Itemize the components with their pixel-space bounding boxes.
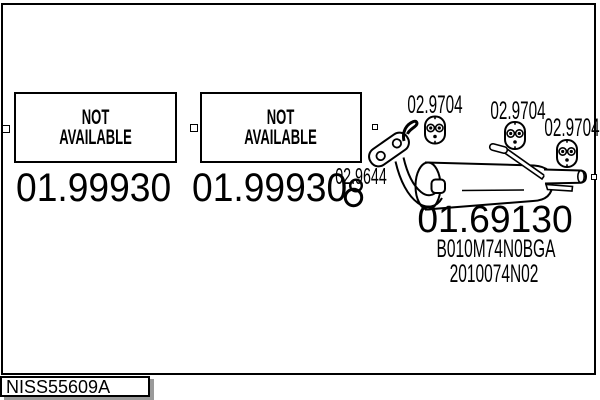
hanger-label-3[interactable]: 02.9704 <box>535 116 600 141</box>
image-placeholder-1[interactable]: NOT AVAILABLE <box>14 92 177 163</box>
hanger-rod-paddle <box>489 143 508 154</box>
part-number-2[interactable]: 01.99930 <box>192 168 347 208</box>
hanger-rod-bottom <box>546 185 573 192</box>
gasket-label[interactable]: 02.9644 <box>330 165 392 188</box>
muffler-part-number[interactable]: 01.69130 <box>397 201 593 239</box>
rubber-hanger-icon-3 <box>557 140 577 167</box>
part-number-1[interactable]: 01.99930 <box>16 168 171 208</box>
catalog-page: NOT AVAILABLE 01.99930 NOT AVAILABLE 01.… <box>0 0 600 400</box>
seam-line <box>462 190 524 191</box>
not-available-label-2: NOT AVAILABLE <box>245 108 318 148</box>
inlet-stub <box>432 180 446 194</box>
oem-ref-2[interactable]: 2010074N02 <box>432 262 556 287</box>
selection-handle-mid-1 <box>190 124 198 132</box>
oem-ref-1[interactable]: B010M74N0BGA <box>434 237 558 262</box>
drawing-code: NISS55609A <box>2 378 110 396</box>
not-available-label-1: NOT AVAILABLE <box>59 108 132 148</box>
rubber-hanger-icon-2 <box>505 122 525 149</box>
drawing-code-box: NISS55609A <box>0 376 150 397</box>
selection-handle-left <box>2 125 10 133</box>
hanger-label-1[interactable]: 02.9704 <box>398 93 471 118</box>
rubber-hanger-icon-1 <box>425 117 445 144</box>
